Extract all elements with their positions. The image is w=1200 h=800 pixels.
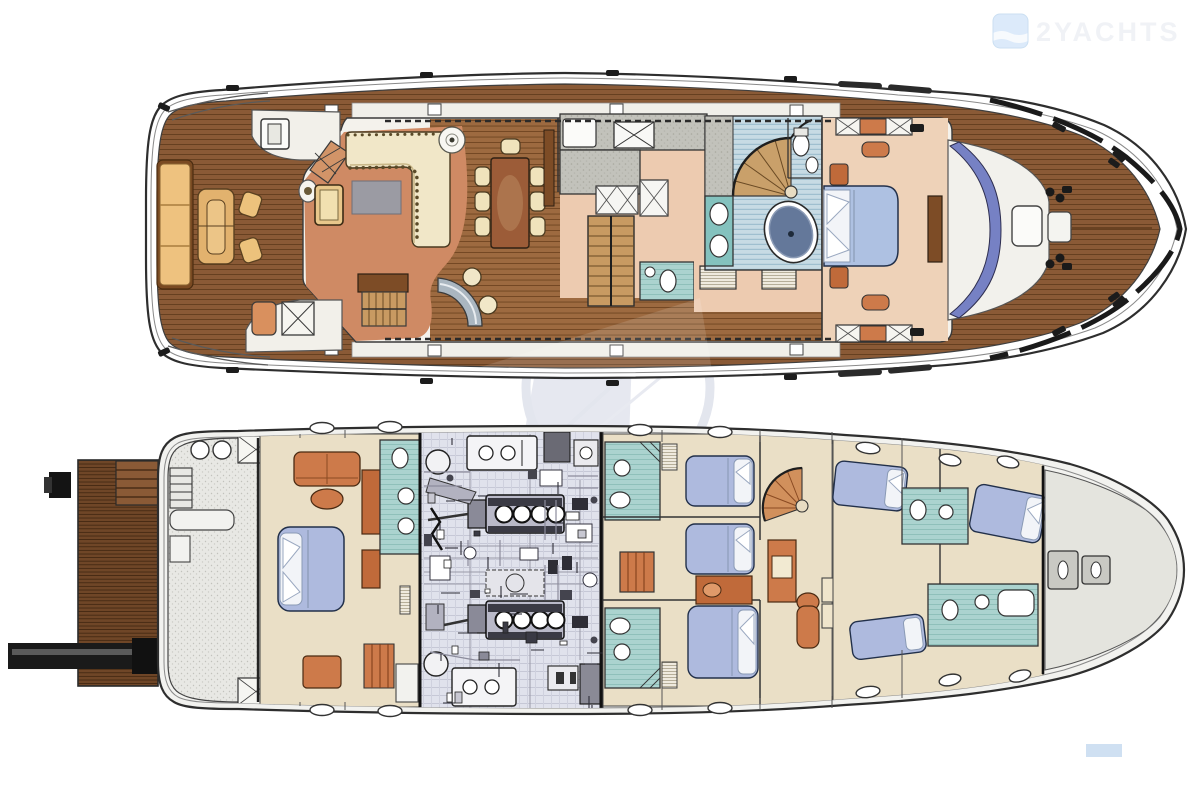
svg-text:2YACHTS: 2YACHTS: [1036, 17, 1181, 47]
